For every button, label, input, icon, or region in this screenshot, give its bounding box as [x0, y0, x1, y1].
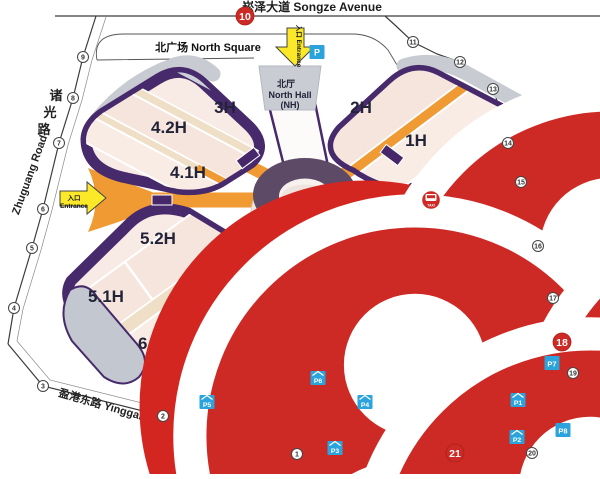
gate-marker-12: 12: [455, 57, 466, 68]
west-entrance-label-cn: 入口: [67, 194, 81, 202]
gate-marker-7: 7: [54, 138, 65, 149]
svg-text:11: 11: [409, 39, 417, 46]
svg-text:1: 1: [295, 451, 299, 458]
gate-marker-11: 11: [408, 37, 419, 48]
svg-text:9: 9: [81, 54, 85, 61]
svg-text:14: 14: [504, 140, 512, 147]
gate-marker-16: 16: [533, 241, 544, 252]
parking-marker-P2: P2: [510, 430, 525, 444]
exhibition-center-map: 入口 Entrance 入口 Entrance 入口 Entrance 入口 E…: [0, 0, 600, 474]
svg-text:20: 20: [528, 450, 536, 457]
svg-text:21: 21: [449, 448, 461, 460]
svg-text:13: 13: [489, 86, 497, 93]
svg-text:P8: P8: [558, 426, 567, 435]
svg-text:7: 7: [57, 140, 61, 147]
north-entrance-label: 入口 Entrance: [295, 24, 303, 68]
svg-text:2: 2: [161, 413, 165, 420]
hall-label-2H: 2H: [350, 98, 372, 117]
svg-text:15: 15: [517, 179, 525, 186]
hall-label-5.2H: 5.2H: [140, 229, 176, 248]
svg-text:19: 19: [569, 370, 577, 377]
svg-text:P7: P7: [547, 359, 556, 368]
svg-text:3: 3: [41, 383, 45, 390]
parking-marker-P5: P5: [200, 395, 215, 409]
hall-label-4.2H: 4.2H: [151, 118, 187, 137]
parking-marker-P6: P6: [311, 371, 326, 385]
gate-marker-6: 6: [38, 204, 49, 215]
west-entrance-label-en: Entrance: [60, 203, 88, 210]
gate-marker-15: 15: [516, 177, 527, 188]
parking-marker-P4: P4: [358, 395, 373, 409]
hall-label-4.1H: 4.1H: [170, 163, 206, 182]
svg-text:17: 17: [549, 295, 557, 302]
parking-marker-P1: P1: [511, 393, 526, 407]
parking-marker-P7: P7: [545, 356, 560, 370]
parking-marker-P3: P3: [328, 441, 343, 455]
station-marker-21: 21: [446, 444, 464, 462]
gate-marker-2: 2: [158, 411, 169, 422]
svg-text:TAXI: TAXI: [427, 204, 435, 208]
svg-text:8: 8: [71, 95, 75, 102]
station-marker-18: 18: [553, 333, 571, 351]
gate-marker-19: 19: [568, 368, 579, 379]
songze-avenue-label: 崧泽大道 Songze Avenue: [242, 0, 382, 14]
parking-marker-P: P: [310, 45, 325, 59]
parking-marker-P8: P8: [556, 423, 571, 437]
station-marker-10: 10: [236, 7, 254, 25]
gate-marker-20: 20: [527, 448, 538, 459]
svg-text:4: 4: [12, 305, 16, 312]
svg-text:P3: P3: [331, 448, 340, 455]
gate-marker-5: 5: [27, 243, 38, 254]
map-canvas: 入口 Entrance 入口 Entrance 入口 Entrance 入口 E…: [0, 0, 600, 474]
hall-label-5.1H: 5.1H: [88, 287, 124, 306]
svg-text:10: 10: [239, 11, 251, 23]
gate-marker-3: 3: [38, 381, 49, 392]
hall-label-3H: 3H: [214, 98, 236, 117]
svg-text:16: 16: [534, 243, 542, 250]
svg-text:5: 5: [30, 245, 34, 252]
gate-marker-17: 17: [548, 293, 559, 304]
svg-text:P4: P4: [361, 402, 370, 409]
svg-text:P: P: [314, 47, 320, 57]
taxi-icons-layer: TAXI: [422, 191, 441, 210]
svg-text:18: 18: [556, 337, 568, 349]
svg-text:P2: P2: [513, 437, 522, 444]
gate-marker-4: 4: [9, 303, 20, 314]
hall-label-1H: 1H: [405, 131, 427, 150]
svg-text:12: 12: [456, 59, 464, 66]
north-hall-label-abbr: (NH): [281, 100, 300, 110]
svg-text:P6: P6: [314, 378, 323, 385]
gate-marker-13: 13: [488, 84, 499, 95]
svg-text:P5: P5: [203, 402, 212, 409]
svg-text:6: 6: [41, 206, 45, 213]
gate-marker-9: 9: [78, 52, 89, 63]
gate-marker-1: 1: [292, 449, 303, 460]
taxi-icon: TAXI: [422, 191, 441, 210]
gate-marker-8: 8: [68, 93, 79, 104]
north-hall-label-cn: 北厅: [277, 78, 295, 89]
north-square-label: 北广场 North Square: [155, 40, 261, 54]
gate-marker-14: 14: [503, 138, 514, 149]
svg-text:P1: P1: [514, 400, 523, 407]
north-hall-label-en: North Hall: [268, 90, 311, 100]
